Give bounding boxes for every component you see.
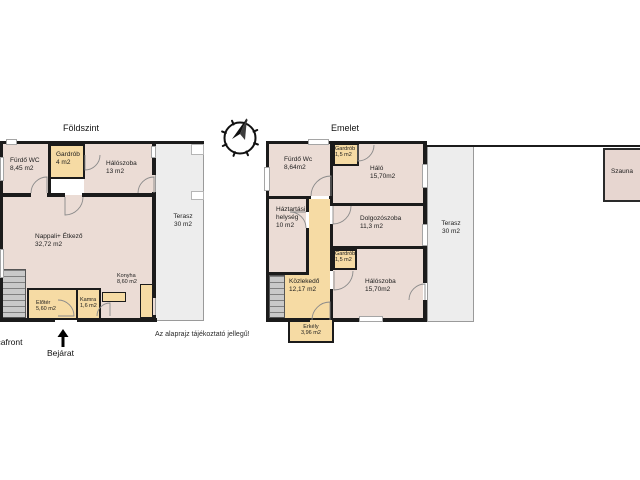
kitchen-counter-icon [102,292,126,302]
window-icon [308,139,329,145]
room-label-e-gardrob-bottom: Gardrób 1,5 m2 [335,251,355,264]
room-label-e-furdo-wc: Fürdő Wc 8,64m2 [284,156,312,172]
wall [423,245,427,283]
wall [48,143,51,193]
wall [0,193,31,197]
terrace-step-icon [191,144,204,155]
room-label-e-haloszoba: Hálószoba 15,70m2 [365,278,396,294]
boundary-line [427,145,640,147]
wall [266,190,269,322]
wall [152,192,156,298]
window-icon [422,224,428,246]
entrance-label: Bejárat [47,348,74,358]
disclaimer-text: Az alaprajz tájékoztató jellegű! [155,331,250,338]
room-label-e-dolgozoszoba: Dolgozószoba 11,3 m2 [360,215,401,231]
window-icon [359,316,383,322]
wall [0,141,3,158]
wall [332,318,360,322]
wall [0,318,55,322]
room-gf-terasz [155,141,204,321]
street-front-label: Utcafront [0,337,23,347]
room-label-e-terasz: Terasz 30 m2 [438,220,464,236]
wall [423,187,427,225]
wall [82,193,156,197]
window-icon [264,167,270,191]
wall [266,141,310,144]
wall [152,315,156,322]
e-stairs-icon [269,275,285,318]
wall [152,157,156,175]
wall [423,141,427,165]
wall [0,277,3,320]
wall [266,272,309,275]
wall [77,318,157,322]
room-label-gf-gardrob: Gardrób 4 m2 [56,151,80,167]
room-label-e-erkely: Erkély 3,96 m2 [301,324,321,337]
room-label-gf-terasz: Terasz 30 m2 [168,213,198,229]
wall [266,318,310,322]
wall [306,228,309,275]
room-label-e-szauna: Szauna [604,168,640,176]
wall [328,141,427,144]
wall [0,180,3,250]
room-label-e-halo: Háló 15,70m2 [370,165,395,181]
north-compass-icon [219,114,261,160]
window-icon [0,249,4,278]
room-label-e-kozlekedo: Közlekedő 12,17 m2 [289,278,319,294]
wall [16,141,204,144]
terrace-step-icon [191,191,204,200]
room-label-gf-nappali: Nappali+ Étkező 32,72 m2 [35,233,83,249]
wall [266,141,269,168]
wall [330,141,333,206]
room-e-kozlekedo-upper [309,199,330,275]
wall [333,246,427,249]
window-icon [151,146,156,158]
wall [423,300,427,322]
wall [47,193,65,197]
room-label-e-haztartasi: Háztartási helység 10 m2 [276,206,312,229]
room-label-gf-kamra: Kamra 1,6 m2 [80,297,97,310]
room-label-gf-haloszoba: Hálószoba 13 m2 [106,160,137,176]
room-label-gf-eloter: Előtér 5,60 m2 [36,300,56,313]
upper-floor-title: Emelet [315,123,375,133]
wall [266,196,311,199]
room-label-gf-konyha: Konyha 8,60 m2 [117,273,137,286]
window-icon [422,164,428,188]
window-icon [0,157,4,181]
entrance-arrow-icon [57,329,69,348]
room-label-gf-furdo-wc: Fürdő WC 8,45 m2 [10,157,40,173]
ground-floor-title: Földszint [51,123,111,133]
room-label-e-gardrob-top: Gardrób 1,5 m2 [335,146,355,159]
window-icon [6,139,17,145]
floorplan-canvas: Földszint Fürdő WC 8,45 m2 Gardrób 4 m2 … [0,0,640,480]
wall [333,203,427,206]
wall [330,289,333,320]
wall [382,318,427,322]
